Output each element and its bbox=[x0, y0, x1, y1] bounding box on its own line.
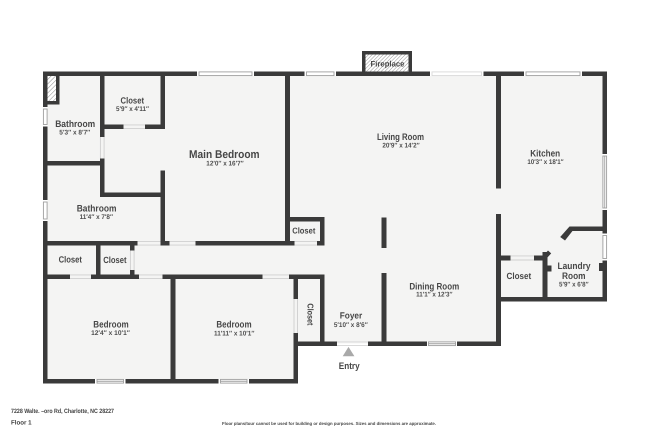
svg-text:Bedroom: Bedroom bbox=[216, 319, 251, 330]
svg-text:Bathroom: Bathroom bbox=[55, 119, 95, 130]
svg-text:Bedroom: Bedroom bbox=[93, 319, 129, 330]
svg-text:Closet: Closet bbox=[292, 226, 315, 236]
svg-text:Room: Room bbox=[562, 271, 586, 282]
svg-text:Closet: Closet bbox=[306, 303, 316, 325]
svg-text:11′1″ x 12′3″: 11′1″ x 12′3″ bbox=[416, 291, 453, 298]
svg-text:5′9″ x 6′8″: 5′9″ x 6′8″ bbox=[559, 282, 589, 289]
svg-text:Fireplace: Fireplace bbox=[371, 59, 406, 68]
svg-text:Closet: Closet bbox=[121, 95, 145, 105]
svg-text:12′4″ x 10′1″: 12′4″ x 10′1″ bbox=[91, 330, 131, 337]
svg-text:20′9″ x 14′2″: 20′9″ x 14′2″ bbox=[382, 143, 420, 150]
svg-text:Closet: Closet bbox=[103, 255, 126, 265]
svg-text:12′0″ x 16′7″: 12′0″ x 16′7″ bbox=[206, 161, 244, 168]
svg-text:5′3″ x 8′7″: 5′3″ x 8′7″ bbox=[59, 129, 91, 136]
svg-text:Living Room: Living Room bbox=[377, 132, 424, 143]
svg-text:5′9″ x 4′11″: 5′9″ x 4′11″ bbox=[116, 106, 150, 113]
svg-text:11′11″ x 10′1″: 11′11″ x 10′1″ bbox=[214, 330, 255, 337]
svg-text:10′3″ x 18′1″: 10′3″ x 18′1″ bbox=[527, 159, 564, 166]
svg-text:11′4″ x 7′8″: 11′4″ x 7′8″ bbox=[80, 214, 114, 221]
svg-text:Closet: Closet bbox=[59, 255, 82, 265]
svg-text:Bathroom: Bathroom bbox=[77, 204, 117, 215]
svg-text:Closet: Closet bbox=[507, 271, 532, 281]
svg-text:Floor 1: Floor 1 bbox=[11, 420, 32, 427]
svg-text:Foyer: Foyer bbox=[340, 311, 363, 321]
svg-text:7228 Walte. –oro Rd, Charlotte: 7228 Walte. –oro Rd, Charlotte, NC 28227 bbox=[11, 408, 114, 415]
svg-text:Kitchen: Kitchen bbox=[530, 149, 560, 160]
svg-text:5′10″ x 8′6″: 5′10″ x 8′6″ bbox=[334, 322, 369, 329]
svg-text:Entry: Entry bbox=[339, 361, 361, 372]
svg-text:Floor plans/tour cannot be use: Floor plans/tour cannot be used for buil… bbox=[222, 421, 436, 426]
svg-text:Main Bedroom: Main Bedroom bbox=[189, 149, 260, 161]
